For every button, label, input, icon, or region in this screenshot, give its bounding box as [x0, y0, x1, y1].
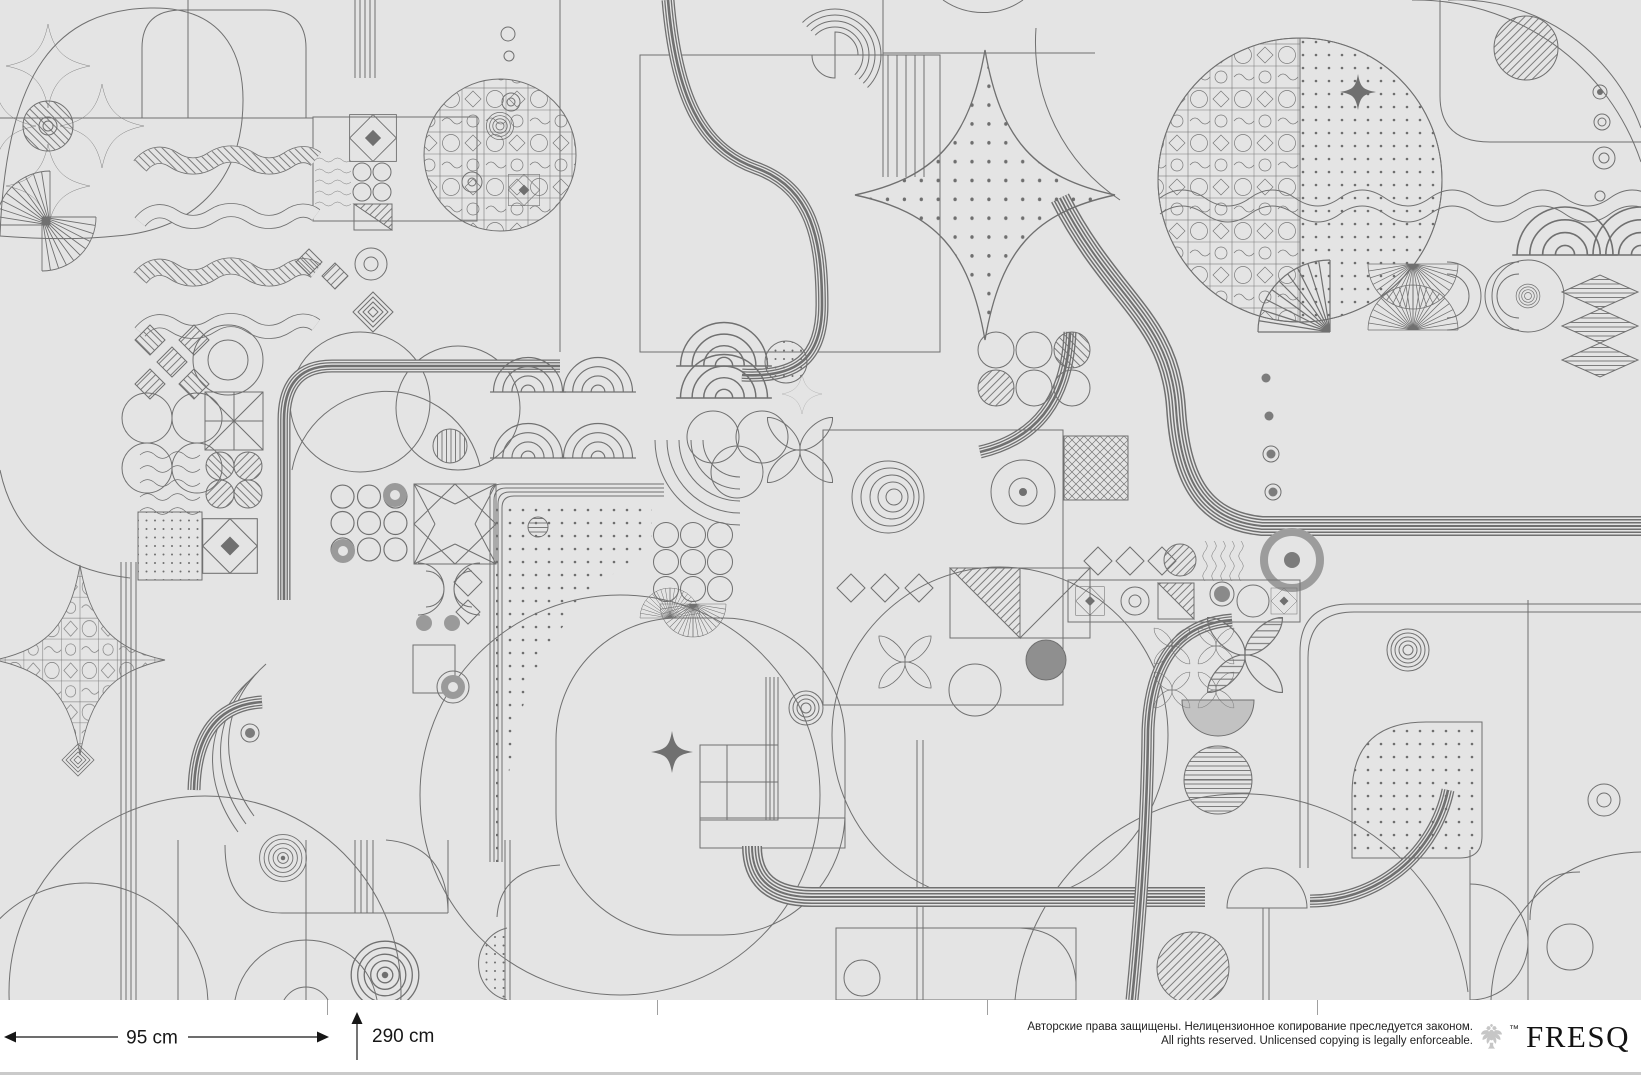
copyright-line-ru: Авторские права защищены. Нелицензионное…: [1027, 1021, 1473, 1035]
brand-logo: FRESQ: [1526, 1021, 1630, 1052]
motif-mosaic-circle: [424, 79, 576, 231]
wallpaper-proof-sheet: 95 cm 290 cm Авторские права защищены. Н…: [0, 0, 1641, 1075]
mural-artwork: [0, 0, 1641, 1000]
height-dimension-arrow: 290 cm: [340, 1008, 480, 1068]
panel-seam-tick: [987, 1000, 988, 1015]
copyright-line-en: All rights reserved. Unlicensed copying …: [1027, 1035, 1473, 1049]
arrow-up-icon: [352, 1012, 363, 1024]
copyright-notice: Авторские права защищены. Нелицензионное…: [1027, 1021, 1473, 1049]
width-label: 95 cm: [126, 1028, 178, 1049]
panel-seam-tick: [1317, 1000, 1318, 1015]
double-headed-eagle-icon: [1480, 1023, 1503, 1050]
width-dimension-arrow: 95 cm: [0, 1016, 340, 1058]
panel-seam-tick: [327, 1000, 328, 1015]
height-label: 290 cm: [372, 1026, 434, 1047]
arrow-left-icon: [4, 1032, 16, 1043]
arrow-right-icon: [317, 1032, 329, 1043]
trademark-symbol: ™: [1509, 1024, 1519, 1035]
panel-seam-tick: [657, 1000, 658, 1015]
footer: 95 cm 290 cm Авторские права защищены. Н…: [0, 1000, 1641, 1072]
